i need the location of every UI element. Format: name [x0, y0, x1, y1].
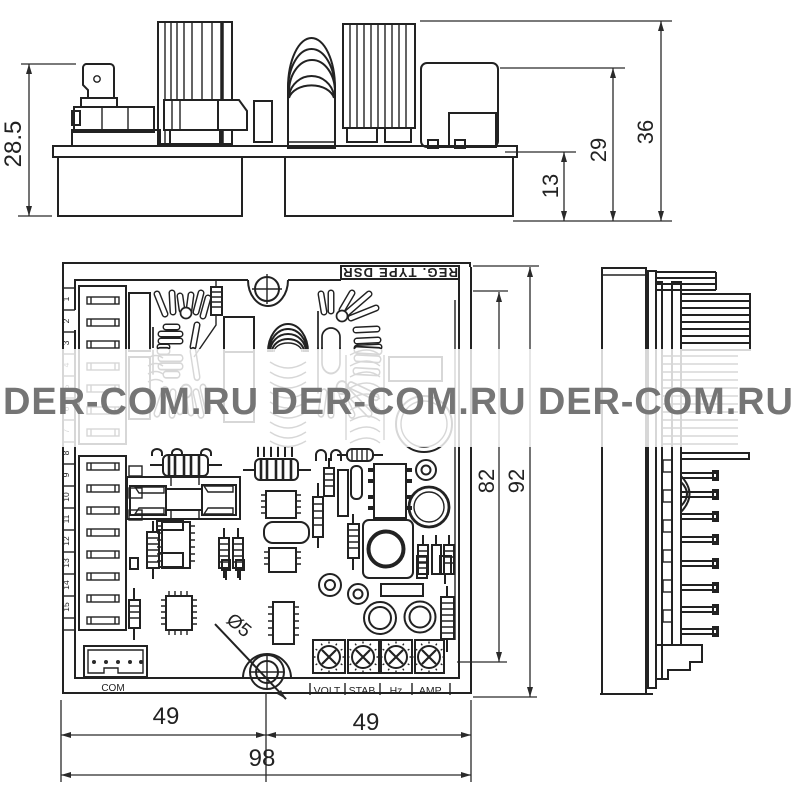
svg-text:82: 82 [474, 469, 499, 493]
svg-text:9: 9 [61, 472, 71, 477]
svg-text:2: 2 [61, 318, 71, 323]
svg-text:15: 15 [61, 602, 71, 612]
svg-text:28.5: 28.5 [0, 121, 27, 168]
svg-text:49: 49 [353, 709, 380, 736]
svg-text:1: 1 [61, 296, 71, 301]
svg-text:AMP.: AMP. [419, 685, 443, 697]
svg-text:COM: COM [101, 683, 124, 694]
svg-text:12: 12 [61, 536, 71, 546]
svg-text:8: 8 [61, 450, 71, 455]
svg-text:STAB: STAB [349, 685, 376, 697]
svg-text:11: 11 [61, 514, 71, 523]
svg-text:Hz: Hz [390, 685, 403, 697]
svg-text:14: 14 [61, 580, 71, 590]
svg-text:REG. TYPE DSR: REG. TYPE DSR [342, 265, 458, 280]
svg-text:13: 13 [538, 174, 563, 198]
svg-text:49: 49 [153, 703, 180, 730]
svg-text:3: 3 [61, 340, 71, 345]
svg-text:DER-COM.RU DER-COM.RU DER-COM.: DER-COM.RU DER-COM.RU DER-COM.RU [3, 381, 794, 423]
svg-text:98: 98 [249, 745, 276, 772]
svg-text:13: 13 [61, 558, 71, 568]
svg-text:10: 10 [61, 492, 71, 502]
svg-text:92: 92 [504, 469, 529, 493]
svg-text:29: 29 [586, 138, 611, 162]
svg-text:36: 36 [633, 120, 658, 144]
svg-text:VOLT: VOLT [314, 685, 341, 697]
